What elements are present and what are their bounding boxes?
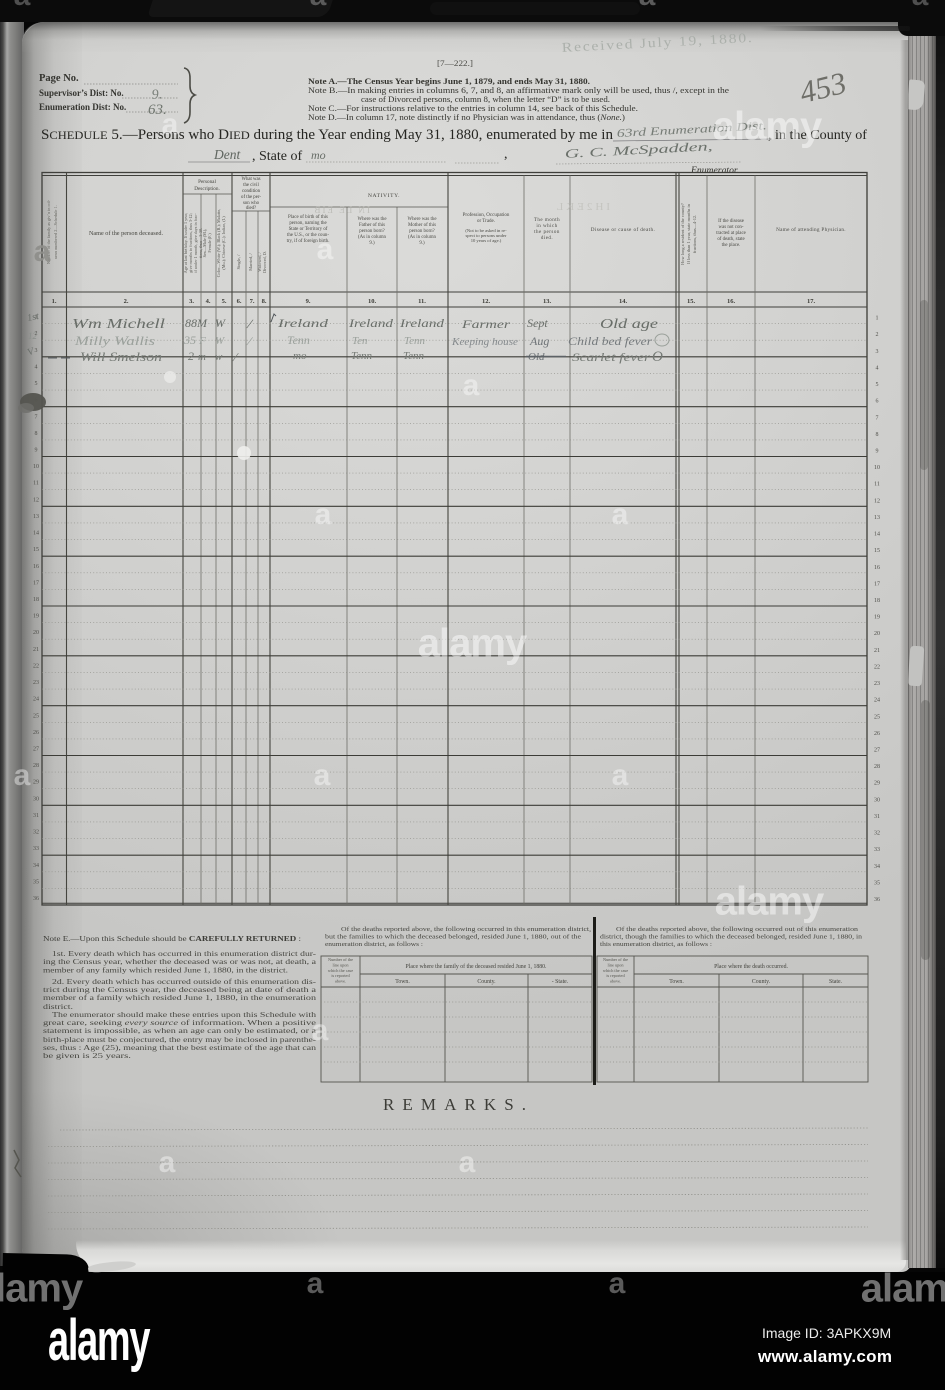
svg-text:9.): 9.)	[369, 241, 375, 246]
svg-text:35: 35	[874, 880, 880, 886]
svg-text:statement is impossible, as wh: statement is impossible, as when an age …	[43, 1026, 317, 1035]
svg-text:17: 17	[33, 580, 39, 586]
svg-text:Number of the: Number of the	[328, 957, 353, 962]
svg-text:14: 14	[33, 531, 39, 537]
svg-text:12: 12	[28, 331, 38, 341]
svg-text:10.: 10.	[368, 298, 377, 305]
svg-text:9.: 9.	[151, 87, 163, 103]
svg-text:(As in column: (As in column	[358, 235, 387, 240]
svg-text:6: 6	[876, 399, 879, 405]
svg-text:4: 4	[35, 364, 38, 370]
svg-text:tracted at place: tracted at place	[716, 231, 746, 236]
svg-text:which the case: which the case	[328, 968, 353, 973]
svg-text:County.: County.	[752, 979, 771, 985]
svg-text:Received July 19, 1880.: Received July 19, 1880.	[561, 30, 754, 55]
svg-text:Number of the: Number of the	[603, 957, 628, 962]
svg-text:21: 21	[33, 647, 39, 653]
svg-text:23: 23	[874, 681, 880, 687]
svg-text:Place where the death occurred: Place where the death occurred.	[714, 964, 788, 970]
svg-text:person, naming the: person, naming the	[289, 221, 326, 226]
svg-text:8: 8	[876, 432, 879, 438]
svg-text:Old age: Old age	[600, 316, 658, 331]
svg-text:IH2EKL: IH2EKL	[554, 201, 611, 213]
svg-text:14: 14	[874, 532, 880, 538]
svg-text:Tenn: Tenn	[404, 335, 425, 347]
svg-text:Dent: Dent	[213, 147, 241, 162]
svg-text:State.: State.	[829, 979, 843, 985]
svg-text:31: 31	[874, 814, 880, 820]
svg-text:Aug: Aug	[529, 334, 549, 348]
svg-text:Of the deaths reported above,: Of the deaths reported above, the follow…	[341, 926, 591, 933]
svg-text:Will Smelson: Will Smelson	[80, 350, 162, 364]
svg-text:Keeping house: Keeping house	[451, 336, 518, 348]
svg-text:18: 18	[874, 598, 880, 604]
svg-text:8.: 8.	[262, 298, 267, 305]
svg-text:Tenn: Tenn	[351, 350, 372, 362]
svg-text:Farmer: Farmer	[461, 317, 511, 331]
svg-text:2.: 2.	[124, 298, 129, 305]
svg-text:2: 2	[188, 349, 194, 363]
svg-text:NATIVITY.: NATIVITY.	[368, 193, 400, 199]
svg-text:Place where the family of the: Place where the family of the deceased r…	[405, 963, 547, 970]
svg-text:3.: 3.	[189, 298, 194, 305]
svg-text:13.: 13.	[543, 298, 552, 305]
svg-text:28: 28	[874, 764, 880, 770]
svg-text:12: 12	[33, 497, 39, 503]
svg-text:9: 9	[876, 449, 879, 455]
svg-text:died?: died?	[246, 206, 256, 211]
svg-text:Where was the: Where was the	[407, 217, 436, 222]
svg-text:30: 30	[33, 796, 39, 802]
svg-text:O: O	[652, 349, 663, 365]
svg-text:11: 11	[874, 482, 880, 488]
svg-text:Enumerator.: Enumerator.	[690, 165, 739, 175]
svg-text:person born?: person born?	[409, 229, 434, 234]
svg-text:above.: above.	[335, 979, 346, 984]
svg-text:Town.: Town.	[395, 979, 410, 985]
svg-text:5: 5	[876, 382, 879, 388]
svg-text:20: 20	[874, 631, 880, 637]
svg-text:Divorced, D.: Divorced, D.	[262, 251, 268, 273]
svg-text:1.: 1.	[52, 298, 57, 305]
svg-text:condition: condition	[242, 189, 261, 194]
svg-text:15.: 15.	[687, 298, 696, 305]
svg-text:25: 25	[33, 713, 39, 719]
svg-text:Description.: Description.	[194, 186, 220, 192]
svg-text:but the families to which the: but the families to which the deceased b…	[325, 933, 581, 940]
svg-text:IN LE EIB: IN LE EIB	[313, 205, 371, 215]
svg-text:Mother of this: Mother of this	[408, 223, 436, 228]
svg-text:Sept: Sept	[527, 316, 548, 330]
svg-text:7: 7	[876, 415, 879, 421]
svg-text:Name of attending Physician.: Name of attending Physician.	[776, 226, 846, 233]
svg-text:Father of this: Father of this	[359, 223, 385, 228]
svg-text:Page No.: Page No.	[39, 73, 79, 84]
svg-text:[7—222.]: [7—222.]	[437, 58, 473, 68]
svg-text:Note E.—Upon this Schedule sho: Note E.—Upon this Schedule should be CAR…	[43, 934, 301, 943]
svg-text:10 years of age.): 10 years of age.)	[471, 238, 502, 243]
svg-text:Ireland: Ireland	[399, 316, 446, 330]
svg-text:Milly Wallis: Milly Wallis	[74, 334, 155, 348]
svg-text:Ireland: Ireland	[277, 316, 330, 330]
svg-text:453: 453	[796, 65, 850, 110]
svg-text:21: 21	[874, 648, 880, 654]
svg-text:36: 36	[874, 897, 880, 903]
svg-text:Wm Michell: Wm Michell	[72, 316, 165, 331]
svg-text:member of a family which resid: member of a family which resided June 1,…	[43, 993, 316, 1002]
svg-text:be given is 25 years.: be given is 25 years.	[43, 1051, 131, 1060]
svg-text:Name of the person deceased.: Name of the person deceased.	[89, 230, 163, 237]
svg-text:7: 7	[35, 414, 38, 420]
svg-text:Place of birth of this: Place of birth of this	[288, 215, 328, 220]
svg-text:- State.: - State.	[552, 979, 569, 985]
svg-text:17.: 17.	[807, 298, 816, 305]
svg-text:which the case: which the case	[603, 968, 628, 973]
svg-text:26: 26	[33, 730, 39, 736]
svg-text:23: 23	[33, 680, 39, 686]
svg-text:Personal: Personal	[198, 179, 216, 185]
svg-text:31: 31	[33, 813, 39, 819]
svg-text:10: 10	[33, 464, 39, 470]
svg-text:5.: 5.	[222, 298, 227, 305]
svg-text:29: 29	[33, 780, 39, 786]
svg-text:13: 13	[33, 514, 39, 520]
svg-text:the civil: the civil	[243, 183, 259, 188]
svg-text:18: 18	[33, 597, 39, 603]
svg-text:line upon: line upon	[332, 962, 349, 967]
svg-text:7.: 7.	[250, 298, 255, 305]
svg-text:Town.: Town.	[669, 979, 684, 985]
svg-text:35: 35	[183, 333, 196, 347]
svg-text:Single, /: Single, /	[236, 254, 242, 269]
svg-text:22: 22	[33, 663, 39, 669]
svg-text:5: 5	[35, 381, 38, 387]
svg-text:22: 22	[874, 664, 880, 670]
svg-text:16: 16	[33, 564, 39, 570]
svg-text:M: M	[196, 316, 208, 330]
svg-text:, State of: , State of	[252, 149, 302, 164]
svg-text:6.: 6.	[237, 298, 242, 305]
svg-text:Scarlet fever: Scarlet fever	[572, 350, 650, 364]
svg-text:The month: The month	[534, 218, 560, 223]
svg-text:29: 29	[874, 781, 880, 787]
svg-text:Tenn: Tenn	[403, 350, 424, 362]
svg-text:25: 25	[874, 714, 880, 720]
svg-text:If the disease: If the disease	[718, 219, 744, 224]
svg-text:4: 4	[876, 365, 879, 371]
svg-text:16.: 16.	[727, 298, 736, 305]
svg-text:is reported: is reported	[331, 973, 350, 978]
svg-text:Of the deaths reported above,: Of the deaths reported above, the follow…	[616, 926, 859, 933]
svg-text:above.: above.	[610, 979, 621, 984]
svg-text:m: m	[198, 351, 206, 363]
svg-text:9.): 9.)	[419, 241, 425, 246]
svg-text:Enumeration Dist: No.: Enumeration Dist: No.	[39, 102, 126, 112]
svg-text:88: 88	[185, 316, 197, 330]
svg-text:Tenn: Tenn	[287, 333, 310, 347]
svg-text:SCHEDULE 5.—Persons who DIED d: SCHEDULE 5.—Persons who DIED during the …	[41, 127, 614, 143]
svg-text:W: W	[215, 316, 226, 330]
svg-text:F: F	[198, 335, 206, 347]
svg-text:34: 34	[33, 863, 39, 869]
svg-text:County.: County.	[477, 979, 496, 985]
svg-text:3: 3	[35, 348, 38, 354]
svg-text:11: 11	[33, 481, 39, 487]
svg-text:enumeration district, as follo: enumeration district, as follows :	[325, 941, 423, 948]
svg-text:mo: mo	[293, 350, 307, 362]
svg-text:State or Territory of: State or Territory of	[289, 227, 328, 232]
svg-text:Note B.—In making entries in c: Note B.—In making entries in columns 6, …	[308, 86, 730, 95]
svg-text:case of Divorced persons, colu: case of Divorced persons, column 8, when…	[361, 95, 610, 104]
svg-text:24: 24	[33, 697, 39, 703]
svg-text:was not con-: was not con-	[719, 225, 744, 230]
svg-text:REMARKS.: REMARKS.	[383, 1095, 531, 1114]
svg-text:line upon: line upon	[607, 962, 624, 967]
svg-text:26: 26	[874, 731, 880, 737]
svg-text:8: 8	[35, 431, 38, 437]
svg-text:the place.: the place.	[722, 243, 741, 248]
svg-text:of death, state: of death, state	[717, 237, 744, 242]
svg-text:Supervisor’s Dist: No.: Supervisor’s Dist: No.	[39, 88, 124, 98]
svg-text:Note A.—The Census Year begins: Note A.—The Census Year begins June 1, 1…	[308, 77, 590, 86]
svg-text:15: 15	[874, 548, 880, 554]
svg-text:13: 13	[874, 515, 880, 521]
svg-text:umn numbered 2—Schedule 1.: umn numbered 2—Schedule 1.	[53, 205, 58, 258]
svg-text:Married, /: Married, /	[248, 252, 254, 270]
svg-text:What was: What was	[241, 177, 260, 182]
svg-text:35: 35	[33, 879, 39, 885]
svg-text:How long a resident of the cou: How long a resident of the county?	[680, 203, 685, 265]
svg-text:17: 17	[874, 581, 880, 587]
svg-text:1st: 1st	[26, 311, 40, 324]
svg-text:9: 9	[35, 448, 38, 454]
svg-text:4.: 4.	[206, 298, 211, 305]
svg-text:or Trade.: or Trade.	[477, 219, 495, 224]
svg-text:district, though the families: district, though the families to which t…	[600, 933, 863, 940]
svg-text:32: 32	[33, 830, 39, 836]
svg-text:Disease or cause of death.: Disease or cause of death.	[591, 226, 655, 233]
svg-text:/: /	[245, 317, 254, 333]
svg-text:Child bed fever: Child bed fever	[568, 334, 652, 348]
svg-text:9.: 9.	[306, 298, 311, 305]
svg-text:Note D.—In column 17, note dis: Note D.—In column 17, note distinctly if…	[308, 113, 625, 122]
svg-text:fractions, thus—4-12.: fractions, thus—4-12.	[692, 215, 698, 253]
svg-text:Profession, Occupation: Profession, Occupation	[463, 213, 510, 218]
svg-text:16: 16	[874, 565, 880, 571]
svg-text:15: 15	[33, 547, 39, 553]
svg-text:33: 33	[874, 847, 880, 853]
svg-text:2: 2	[876, 332, 879, 338]
svg-text:19: 19	[33, 614, 39, 620]
svg-text:34: 34	[874, 864, 880, 870]
svg-text:the person: the person	[534, 230, 560, 235]
svg-text:in which: in which	[536, 224, 557, 229]
svg-text:14.: 14.	[619, 298, 628, 305]
svg-text:Where was the: Where was the	[357, 217, 386, 222]
svg-text:1: 1	[876, 316, 879, 322]
svg-text:Female (F.): Female (F.)	[207, 233, 212, 253]
svg-text:28: 28	[33, 763, 39, 769]
svg-text:20: 20	[33, 630, 39, 636]
svg-text:w: w	[215, 351, 223, 363]
svg-text:10: 10	[874, 465, 880, 471]
svg-text:30: 30	[874, 797, 880, 803]
svg-text:(Mu.); Chinese (C.); Indian, (: (Mu.); Chinese (C.); Indian, (I.)	[221, 216, 227, 270]
svg-text:12: 12	[874, 498, 880, 504]
svg-text:,: ,	[504, 147, 508, 162]
svg-text:Ireland: Ireland	[348, 316, 395, 330]
svg-text:27: 27	[33, 747, 39, 753]
svg-text:(As in column: (As in column	[408, 235, 437, 240]
svg-text:died.: died.	[541, 236, 553, 241]
svg-text:24: 24	[874, 698, 880, 704]
svg-text:is reported: is reported	[606, 973, 625, 978]
svg-text:Note C.—For instructions relat: Note C.—For instructions relative to the…	[308, 104, 638, 113]
svg-text:27: 27	[874, 748, 880, 754]
svg-text:3: 3	[876, 349, 879, 355]
svg-text:33: 33	[33, 846, 39, 852]
svg-text:12.: 12.	[482, 298, 491, 305]
svg-text:19: 19	[874, 615, 880, 621]
svg-text:person born?: person born?	[359, 229, 384, 234]
svg-text:this enumeration district, as: this enumeration district, as follows :	[600, 941, 712, 948]
svg-text:32: 32	[874, 831, 880, 837]
svg-text:of the per-: of the per-	[241, 195, 261, 200]
svg-text:member of any family which res: member of any family which resided June …	[43, 965, 288, 974]
svg-text:Ten: Ten	[352, 335, 368, 347]
svg-text:W: W	[215, 335, 225, 347]
svg-text:11.: 11.	[418, 298, 426, 305]
svg-text:mo: mo	[311, 148, 326, 162]
svg-text:36: 36	[33, 896, 39, 902]
svg-text:/: /	[245, 333, 254, 349]
